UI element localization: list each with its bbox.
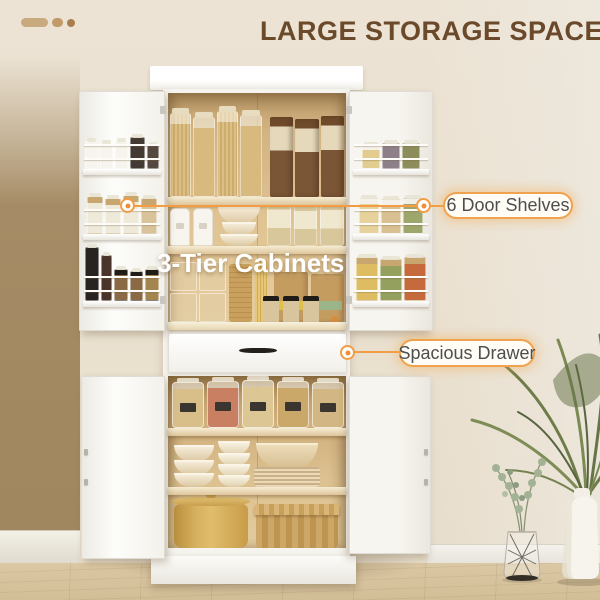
jar <box>382 143 400 169</box>
pasta-jar <box>312 382 344 428</box>
chocolate-box <box>321 116 344 197</box>
door-shelf-board <box>83 301 161 307</box>
bowl <box>220 234 258 246</box>
ceramic-canister <box>170 208 190 246</box>
product-image: LARGE STORAGE SPACE <box>0 0 600 600</box>
lower-tier3-items <box>174 497 344 548</box>
door-shelf-items <box>85 129 159 169</box>
spice-jar-row <box>263 296 319 323</box>
door-shelf-rail <box>84 144 160 146</box>
door-shelves-callout-dot-right <box>416 198 431 213</box>
bowl-stack <box>218 208 260 246</box>
pasta-jar <box>277 381 309 428</box>
pasta-canister <box>193 117 214 197</box>
ceramic-canister <box>193 208 213 246</box>
door-shelf-rail <box>84 290 160 292</box>
drawer-callout-pill: Spacious Drawer <box>399 339 535 367</box>
candle-jar <box>362 145 380 169</box>
spice-grinder <box>114 269 128 301</box>
logo-bar-icon <box>21 18 48 27</box>
door-shelf-rail <box>84 223 160 225</box>
corn-jar <box>356 257 378 301</box>
labeled-canister <box>267 202 291 246</box>
lower-tier2-items <box>174 436 344 487</box>
upper-tier1-items <box>170 110 344 197</box>
spice-jar <box>303 296 319 323</box>
plate-stack <box>254 443 320 487</box>
jar <box>130 137 145 169</box>
jar <box>402 143 420 169</box>
pasta-canister <box>240 115 261 197</box>
tall-vase <box>562 488 599 579</box>
door-shelf-rail <box>354 223 428 225</box>
door-shelves-callout-pill: 6 Door Shelves <box>443 192 573 219</box>
door-shelf-items <box>355 137 427 169</box>
oil-bottle <box>85 247 99 301</box>
pasta-canister <box>217 111 238 197</box>
popcorn-jar <box>359 198 379 234</box>
hinge-icon <box>346 296 352 304</box>
drawer-handle <box>239 348 277 353</box>
door-shelf-rail <box>354 276 428 278</box>
cabinet-base <box>151 556 356 584</box>
left-wall <box>0 0 80 563</box>
bowl <box>174 473 214 487</box>
wicker-basket <box>256 506 338 548</box>
door-shelf-rail <box>354 144 428 146</box>
door-shelf-board <box>83 169 161 175</box>
door-shelf-rail <box>84 276 160 278</box>
bowl-stack <box>174 447 214 487</box>
spice-jar <box>283 296 299 323</box>
lower-shelf-board <box>168 428 346 436</box>
door-shelf-rail <box>354 158 428 160</box>
glass-container <box>170 293 197 322</box>
jar <box>100 143 113 169</box>
door-shelves-callout-dot-left <box>120 198 135 213</box>
hinge-icon <box>84 479 88 485</box>
hinge-icon <box>424 479 428 485</box>
lower-tier1-items <box>172 382 344 428</box>
labeled-canister <box>320 203 344 246</box>
left-baseboard <box>0 530 80 565</box>
door-shelf-rail <box>354 290 428 292</box>
hinge-icon <box>424 449 428 455</box>
door-shelf-items <box>355 192 427 234</box>
logo-dot-icon <box>67 19 75 27</box>
drawer-callout-line <box>352 351 400 353</box>
glass-container <box>199 293 226 322</box>
door-shelf-board <box>353 169 429 175</box>
stock-pot <box>174 504 248 548</box>
lower-right-door <box>349 376 431 554</box>
drawer <box>168 333 347 373</box>
spice-jar <box>263 296 279 323</box>
hinge-icon <box>160 106 166 114</box>
brand-logo <box>21 18 75 27</box>
pasta-jar <box>242 380 274 428</box>
lentil-jar <box>404 257 426 301</box>
door-shelf-items <box>355 255 427 301</box>
flour-jar <box>87 196 103 234</box>
upper-bottom-board <box>168 322 346 330</box>
tier-cabinets-label: 3-Tier Cabinets <box>157 248 344 279</box>
door-shelf-board <box>353 301 429 307</box>
vinegar-bottle <box>101 255 113 301</box>
door-shelf-board <box>353 234 429 240</box>
hinge-icon <box>346 106 352 114</box>
door-shelves-callout-label: 6 Door Shelves <box>446 195 569 216</box>
pasta-jar <box>207 381 239 428</box>
cabinet-top-panel <box>150 66 363 90</box>
jar <box>147 145 159 169</box>
labeled-canister <box>294 204 318 246</box>
pasta-jar <box>172 382 204 428</box>
door-shelves-callout-line <box>127 205 443 207</box>
door-shelf-rail <box>84 158 160 160</box>
logo-bar-small-icon <box>52 18 63 27</box>
lower-left-door <box>81 376 165 559</box>
upper-shelf-board <box>168 197 346 205</box>
leaf-cluster <box>553 353 600 407</box>
flour-jar <box>105 198 121 234</box>
hinge-icon <box>160 296 166 304</box>
pasta-canister <box>170 113 191 197</box>
seed-jar <box>380 259 402 301</box>
door-shelf-board <box>83 234 161 240</box>
serving-bowl <box>256 443 318 469</box>
drawer-callout-dot <box>340 345 355 360</box>
chocolate-box <box>270 117 293 197</box>
bowl <box>218 475 250 487</box>
glass-vase <box>504 532 540 581</box>
page-title: LARGE STORAGE SPACE <box>260 16 600 47</box>
hinge-icon <box>84 449 88 455</box>
lower-shelf-board <box>168 487 346 495</box>
grain-jar <box>141 198 157 234</box>
plates <box>254 467 320 487</box>
chocolate-box <box>295 119 318 197</box>
upper-tier2-items <box>170 205 344 246</box>
bowl-stack <box>218 443 250 487</box>
door-shelf-items <box>85 247 159 301</box>
drawer-callout-label: Spacious Drawer <box>398 343 535 364</box>
